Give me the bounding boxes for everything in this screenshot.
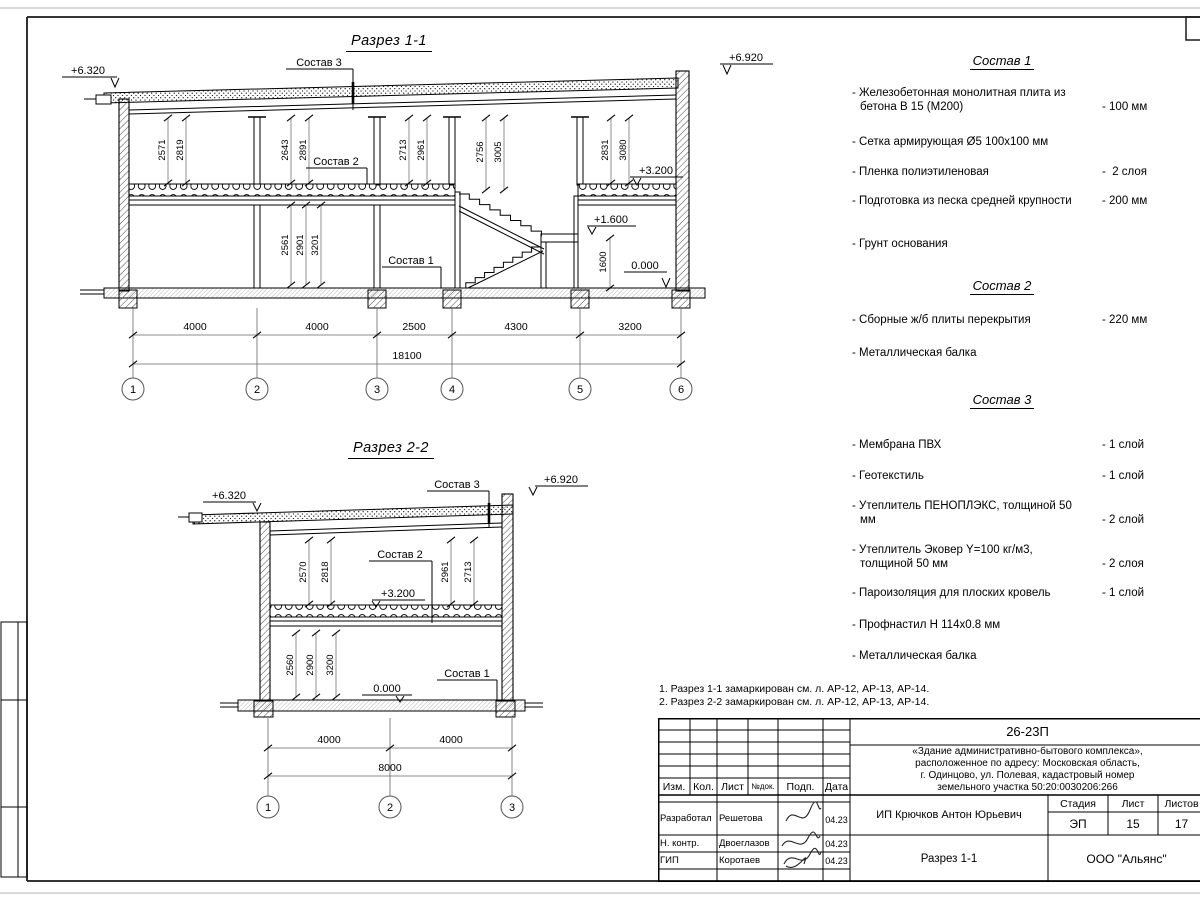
role-cell: Н. контр.: [660, 835, 717, 852]
ground-slab: [238, 700, 525, 711]
note-line: 2. Разрез 2-2 замаркирован см. л. АР-12,…: [659, 696, 929, 709]
drawing-name: Разрез 1-1: [850, 835, 1048, 882]
vdim: 2643: [280, 139, 291, 160]
list-item: - Утеплитель ПЕНОПЛЭКС, толщиной 50 мм- …: [852, 499, 1162, 527]
list-item: - Мембрана ПВХ- 1 слой: [852, 438, 1162, 452]
grid-bubble-label: 3: [374, 384, 380, 396]
vdim: 3200: [325, 654, 336, 675]
layer-label: Состав 1: [444, 668, 490, 680]
level-value: 0.000: [373, 683, 401, 695]
role-cell: ГИП: [660, 852, 717, 869]
titleblock: Изм. Кол. Лист №док. Подп. Дата Разработ…: [658, 718, 1200, 882]
hdim: 4000: [317, 734, 341, 746]
list-item: - Утеплитель Эковер Y=100 кг/м3, толщино…: [852, 543, 1162, 571]
note-line: 1. Разрез 1-1 замаркирован см. л. АР-12,…: [659, 683, 929, 696]
grid-bubble-label: 5: [577, 384, 583, 396]
name-cell: Коротаев: [719, 852, 778, 869]
vdim: 2961: [440, 561, 451, 582]
hdim: 4000: [183, 321, 207, 333]
roof: [193, 505, 513, 524]
sostav2-heading: Состав 2: [852, 278, 1152, 293]
vdim: 2961: [416, 139, 427, 160]
grid-bubbles: [122, 378, 692, 400]
section-2-2-drawing: 2570 2818 2961 2713 2560 2900 3200 4000 …: [178, 474, 588, 818]
sheets-value: 17: [1158, 812, 1200, 835]
layer-label: Состав 3: [434, 479, 480, 491]
total-dim: 8000: [378, 762, 402, 774]
list-item: - Железобетонная монолитная плита из бет…: [852, 86, 1162, 114]
grid-bubble-label: 6: [678, 384, 684, 396]
wall-right: [676, 71, 689, 291]
layer-label: Состав 2: [377, 549, 423, 561]
grid-bubble-label: 2: [387, 802, 393, 814]
layer-label: Состав 3: [296, 57, 342, 69]
bottom-dims: [133, 308, 681, 378]
section-1-1-title: Разрез 1-1: [346, 33, 432, 52]
section-1-1-drawing: 2571 2819 2643 2891 2713 2961 2756 3005 …: [62, 52, 773, 400]
vdim: 2819: [175, 139, 186, 160]
level-value: +6.320: [212, 490, 246, 502]
col-header-list: Лист: [717, 778, 748, 795]
stage-value: ЭП: [1048, 812, 1108, 835]
roof: [104, 78, 678, 103]
level-value: +1.600: [594, 214, 628, 226]
hdim: 4000: [439, 734, 463, 746]
ground-slab: [104, 288, 705, 298]
name-cell: Двоеглазов: [719, 835, 778, 852]
vdim: 2561: [280, 234, 291, 255]
section-2-2-title: Разрез 2-2: [348, 440, 434, 459]
floor-slab: [578, 184, 676, 196]
total-dim: 18100: [392, 350, 421, 362]
col-header-izm: Изм.: [658, 778, 690, 795]
vdim: 2901: [295, 234, 306, 255]
list-item: - Металлическая балка: [852, 346, 1162, 360]
wall-left: [260, 522, 270, 701]
level-value: +3.200: [381, 588, 415, 600]
wall-left: [119, 99, 129, 291]
list-item: - Пленка полиэтиленовая- 2 слоя: [852, 165, 1162, 179]
name-cell: Решетова: [719, 802, 778, 835]
vdim: 3005: [493, 141, 504, 162]
vdim: 2900: [305, 654, 316, 675]
vdim: 3080: [618, 139, 629, 160]
vdim: 2713: [463, 561, 474, 582]
list-item: - Металлическая балка: [852, 649, 1162, 663]
level-value: +6.920: [544, 474, 578, 486]
vdim: 2891: [298, 139, 309, 160]
col-header-ndok: №док.: [748, 778, 778, 795]
vdim: 3201: [310, 234, 321, 255]
layer-label: Состав 1: [388, 255, 434, 267]
level-value: +3.200: [639, 165, 673, 177]
sostav3-heading: Состав 3: [852, 392, 1152, 407]
role-cell: Разработал: [660, 802, 717, 835]
list-item: - Пароизоляция для плоских кровель- 1 сл…: [852, 586, 1162, 600]
grid-bubble-label: 3: [509, 802, 515, 814]
stage-label: Стадия: [1048, 795, 1108, 812]
col-header-data: Дата: [823, 778, 850, 795]
vdim: 2831: [600, 139, 611, 160]
vdim: 2818: [320, 561, 331, 582]
col-header-kol: Кол.: [690, 778, 717, 795]
date-cell: 04.23: [823, 810, 850, 830]
grid-bubble-label: 2: [254, 384, 260, 396]
layer-label: Состав 2: [313, 156, 359, 168]
drawing-sheet: 2571 2819 2643 2891 2713 2961 2756 3005 …: [0, 0, 1200, 900]
vdim: 2571: [157, 139, 168, 160]
sheets-label: Листов: [1158, 795, 1200, 812]
hdim: 3200: [618, 321, 642, 333]
wall-right: [502, 494, 513, 701]
list-item: - Сетка армирующая Ø5 100х100 мм: [852, 135, 1162, 149]
sostav1-heading: Состав 1: [852, 53, 1152, 68]
hdim: 4000: [305, 321, 329, 333]
level-value: +6.320: [71, 65, 105, 77]
project-description: «Здание административно-бытового комплек…: [850, 745, 1200, 795]
list-item: - Грунт основания: [852, 237, 1162, 251]
level-value: +6.920: [729, 52, 763, 64]
list-item: - Подготовка из песка средней крупности-…: [852, 194, 1162, 208]
company-name: ООО "Альянс": [1048, 835, 1200, 882]
grid-bubble-label: 4: [449, 384, 455, 396]
list-item: - Профнастил Н 114х0.8 мм: [852, 618, 1162, 632]
vdim: 1600: [598, 251, 609, 272]
vdim: 2570: [298, 561, 309, 582]
sheet-value: 15: [1108, 812, 1158, 835]
list-item: - Сборные ж/б плиты перекрытия- 220 мм: [852, 313, 1162, 327]
grid-bubble-label: 1: [265, 802, 271, 814]
document-number: 26-23П: [850, 718, 1200, 745]
customer: ИП Крючков Антон Юрьевич: [850, 795, 1048, 835]
vdim: 2560: [285, 654, 296, 675]
hdim: 4300: [504, 321, 528, 333]
bottom-dims: [268, 718, 512, 796]
sheet-label: Лист: [1108, 795, 1158, 812]
vdim: 2756: [475, 141, 486, 162]
hdim: 2500: [402, 321, 426, 333]
level-value: 0.000: [631, 260, 659, 272]
vdim: 2713: [398, 139, 409, 160]
date-cell: 04.23: [823, 852, 850, 869]
left-margin-stamps: [1, 622, 27, 877]
col-header-podp: Подп.: [778, 778, 823, 795]
staircase: [455, 192, 578, 288]
list-item: - Геотекстиль- 1 слой: [852, 469, 1162, 483]
date-cell: 04.23: [823, 835, 850, 852]
grid-bubble-label: 1: [130, 384, 136, 396]
notes: 1. Разрез 1-1 замаркирован см. л. АР-12,…: [659, 683, 929, 709]
